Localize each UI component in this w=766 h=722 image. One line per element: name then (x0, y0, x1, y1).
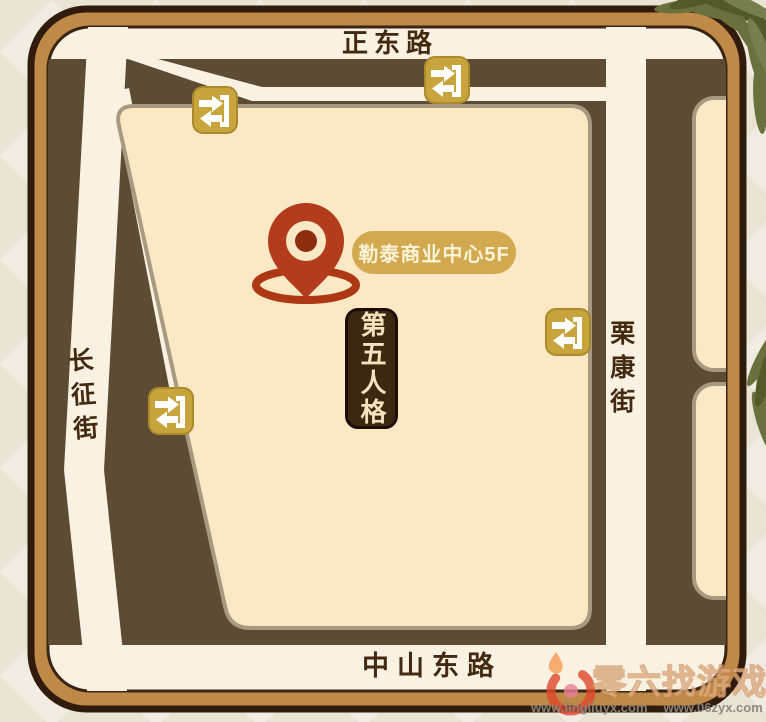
venue-banner: 第五人格 (345, 308, 398, 429)
street-label-east: 栗康街 (606, 296, 635, 446)
venue-banner-text: 第五人格 (353, 311, 390, 427)
watermark-site-name: 零六找游戏 (592, 655, 766, 704)
metro-entrance-icon (149, 388, 193, 434)
street-label-south: 中山东路 (332, 651, 532, 682)
destination-label: 勒泰商业中心5F (352, 231, 516, 274)
map-stage: 正东路 中山东路 长征街 栗康街 勒泰商业中心5F 第五人格 零六找游戏 www… (0, 0, 766, 722)
street-label-north: 正东路 (320, 29, 460, 59)
metro-entrance-icon (546, 309, 590, 355)
watermark-url-left: www.lingliuyx.com (531, 700, 648, 715)
destination-label-text: 勒泰商业中心5F (358, 238, 509, 267)
watermark-urls: www.lingliuyx.com www.06zyx.com (531, 700, 766, 715)
metro-entrance-icon (193, 87, 237, 133)
metro-entrance-icon (425, 57, 469, 103)
watermark-url-right: www.06zyx.com (664, 700, 763, 715)
road-network (48, 27, 752, 691)
